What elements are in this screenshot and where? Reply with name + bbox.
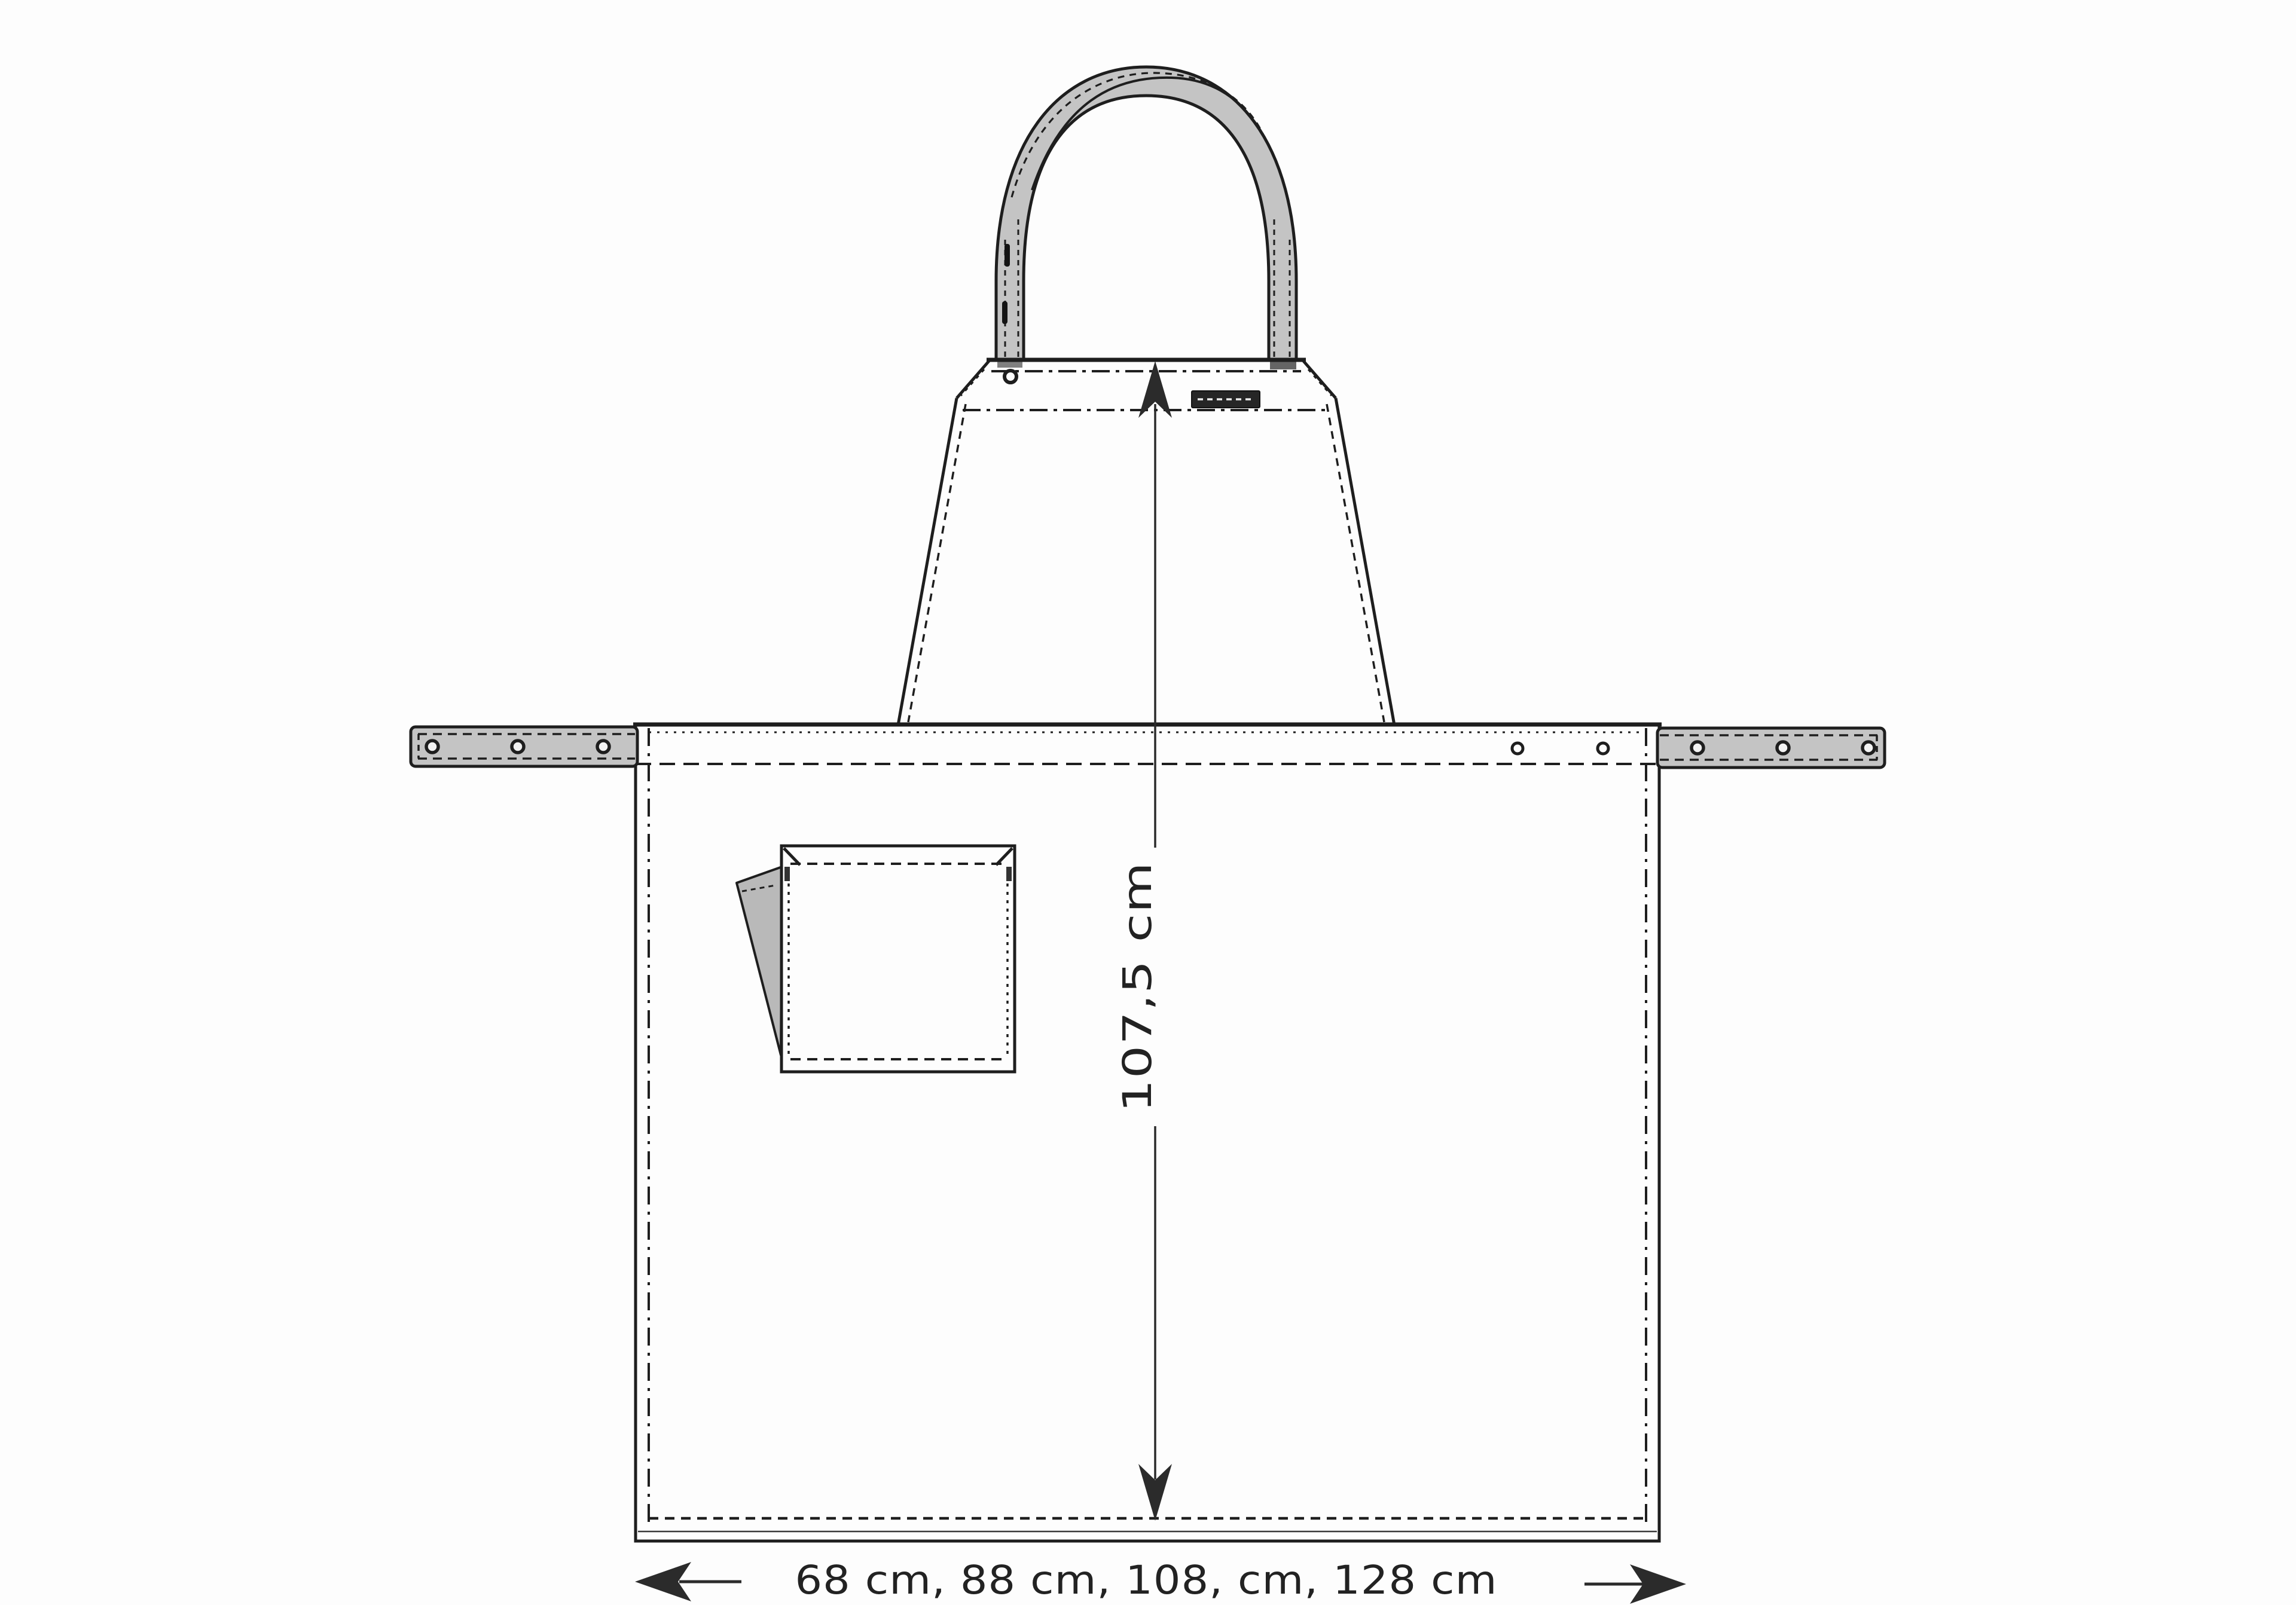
pocket-corner-bar-right xyxy=(1006,867,1012,881)
bib xyxy=(898,360,1394,726)
pocket-body xyxy=(781,846,1015,1072)
apron-flat-sketch-canvas: 107,5 cm 68 cm, 88 cm, 108, cm, 128 cm xyxy=(0,0,2296,1605)
brand-label xyxy=(1192,391,1260,408)
tie-eyelet xyxy=(1692,742,1703,754)
strap-buttonhole-lower xyxy=(1002,301,1007,324)
waist-eyelet-right-2 xyxy=(1598,743,1608,754)
strap-buttonhole-upper xyxy=(1004,244,1010,267)
bib-grommet xyxy=(1004,371,1016,383)
neck-strap xyxy=(996,67,1296,368)
pocket xyxy=(737,846,1015,1072)
apron-technical-drawing: 107,5 cm 68 cm, 88 cm, 108, cm, 128 cm xyxy=(0,0,2296,1605)
height-dimension-label: 107,5 cm xyxy=(1115,861,1161,1112)
bib-panel-fill xyxy=(898,360,1394,726)
width-dimension-label: 68 cm, 88 cm, 108, cm, 128 cm xyxy=(795,1557,1498,1603)
tie-eyelet xyxy=(426,741,438,753)
tie-eyelet xyxy=(512,741,524,753)
horizontal-dimension: 68 cm, 88 cm, 108, cm, 128 cm xyxy=(635,1557,1686,1604)
neck-strap-band xyxy=(996,67,1296,368)
waist-tie-right xyxy=(1657,728,1885,768)
tie-eyelet xyxy=(1863,742,1874,754)
pocket-corner-bar-left xyxy=(784,867,790,881)
tie-eyelet xyxy=(1777,742,1789,754)
waist-tie-left xyxy=(411,727,637,766)
tie-eyelet xyxy=(597,741,609,753)
waist-eyelet-right-1 xyxy=(1512,743,1523,754)
